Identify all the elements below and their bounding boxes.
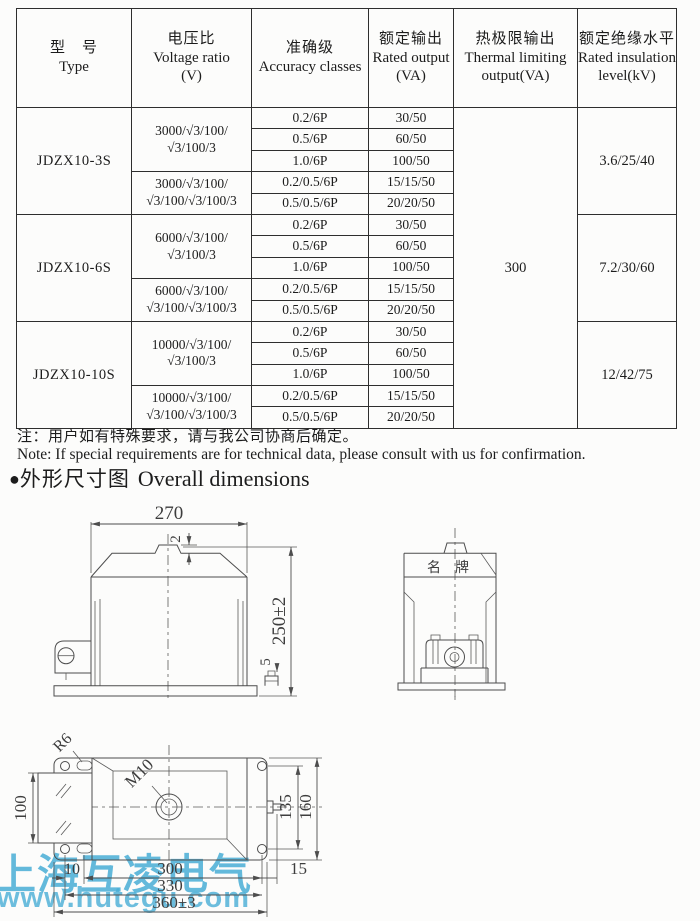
voltage-ratio-cell: 6000/√3/100/ √3/100/√3/100/3 [132, 279, 252, 322]
accuracy-cell: 0.2/0.5/6P [252, 386, 369, 407]
dim-total: 360±3 [152, 893, 195, 912]
voltage-ratio-cell: 3000/√3/100/ √3/100/3 [132, 108, 252, 172]
header-accuracy: 准确级 Accuracy classes [252, 9, 369, 108]
mount-hole [61, 762, 70, 771]
header-thermal: 热极限输出 Thermal limiting output(VA) [454, 9, 578, 108]
accuracy-cell: 0.5/6P [252, 343, 369, 364]
accuracy-cell: 1.0/6P [252, 150, 369, 171]
terminal-hole [445, 647, 465, 667]
accuracy-cell: 1.0/6P [252, 364, 369, 385]
header-rated-output: 额定输出 Rated output (VA) [369, 9, 454, 108]
mount-slot [77, 844, 92, 853]
dim-front-width: 270 [155, 503, 184, 524]
output-cell: 100/50 [369, 364, 454, 385]
table-row: JDZX10-10S 10000/√3/100/ √3/100/3 0.2/6P… [17, 321, 677, 342]
voltage-ratio-cell: 10000/√3/100/ √3/100/√3/100/3 [132, 386, 252, 429]
section-heading: ●外形尺寸图Overall dimensions [9, 463, 310, 493]
voltage-ratio-cell: 6000/√3/100/ √3/100/3 [132, 214, 252, 278]
side-view-drawing: 名牌 [398, 528, 505, 700]
table-header-row: 型 号 Type 电压比 Voltage ratio (V) 准确级 Accur… [17, 9, 677, 108]
dim-off-right: 15 [290, 859, 307, 878]
dim-base-bolt: 5 [258, 658, 274, 666]
output-cell: 20/20/50 [369, 407, 454, 428]
dim-thread: M10 [121, 755, 157, 791]
output-cell: 100/50 [369, 257, 454, 278]
accuracy-cell: 0.2/6P [252, 108, 369, 129]
voltage-ratio-cell: 3000/√3/100/ √3/100/√3/100/3 [132, 172, 252, 215]
type-cell: JDZX10-6S [17, 214, 132, 321]
header-type: 型 号 Type [17, 9, 132, 108]
section-title-en: Overall dimensions [138, 466, 310, 491]
voltage-ratio-cell: 10000/√3/100/ √3/100/3 [132, 321, 252, 385]
mount-hole [258, 762, 267, 771]
insulation-cell: 3.6/25/40 [578, 108, 677, 215]
dim-right-inner: 135 [276, 794, 295, 820]
note-zh: 注：用户如有特殊要求，请与我公司协商后确定。 [17, 425, 358, 446]
output-cell: 60/50 [369, 129, 454, 150]
dim-right-outer: 160 [296, 794, 315, 820]
insulation-cell: 7.2/30/60 [578, 214, 677, 321]
table-row: JDZX10-3S 3000/√3/100/ √3/100/3 0.2/6P 3… [17, 108, 677, 129]
output-cell: 60/50 [369, 236, 454, 257]
output-cell: 15/15/50 [369, 279, 454, 300]
dim-left-height: 100 [11, 795, 30, 821]
table-row: JDZX10-6S 6000/√3/100/ √3/100/3 0.2/6P 3… [17, 214, 677, 235]
accuracy-cell: 0.5/6P [252, 129, 369, 150]
dim-slot-radius: R6 [50, 730, 75, 755]
header-insulation: 额定绝缘水平 Rated insulation level(kV) [578, 9, 677, 108]
dim-cap-height: 2 [168, 535, 184, 543]
front-view-drawing: 270 2 250±2 5 [54, 503, 297, 702]
output-cell: 60/50 [369, 343, 454, 364]
note-en: Note: If special requirements are for te… [17, 446, 586, 464]
insulation-cell: 12/42/75 [578, 321, 677, 428]
output-cell: 30/50 [369, 214, 454, 235]
output-cell: 30/50 [369, 108, 454, 129]
accuracy-cell: 0.2/6P [252, 214, 369, 235]
thermal-cell: 300 [454, 108, 578, 429]
overall-dimensions-drawing: 270 2 250±2 5 [0, 500, 700, 921]
accuracy-cell: 1.0/6P [252, 257, 369, 278]
accuracy-cell: 0.2/0.5/6P [252, 172, 369, 193]
mount-slot [77, 761, 92, 770]
output-cell: 15/15/50 [369, 172, 454, 193]
output-cell: 100/50 [369, 150, 454, 171]
spec-table: 型 号 Type 电压比 Voltage ratio (V) 准确级 Accur… [16, 8, 677, 429]
accuracy-cell: 0.2/0.5/6P [252, 279, 369, 300]
bullet-icon: ● [9, 469, 20, 489]
accuracy-cell: 0.5/6P [252, 236, 369, 257]
accuracy-cell: 0.5/0.5/6P [252, 300, 369, 321]
header-voltage-ratio: 电压比 Voltage ratio (V) [132, 9, 252, 108]
mount-hole [258, 845, 267, 854]
section-title-zh: 外形尺寸图 [20, 467, 130, 491]
output-cell: 20/20/50 [369, 193, 454, 214]
left-terminal-box [38, 773, 92, 843]
page: { "table": { "headers": { "type": ["型 号"… [0, 0, 700, 921]
bottom-view-drawing: R6 100 M10 135 160 [11, 730, 322, 917]
output-cell: 30/50 [369, 321, 454, 342]
type-cell: JDZX10-3S [17, 108, 132, 215]
dim-front-height: 250±2 [269, 597, 290, 645]
output-cell: 20/20/50 [369, 300, 454, 321]
accuracy-cell: 0.5/0.5/6P [252, 193, 369, 214]
accuracy-cell: 0.2/6P [252, 321, 369, 342]
output-cell: 15/15/50 [369, 386, 454, 407]
type-cell: JDZX10-10S [17, 321, 132, 428]
mount-hole [61, 845, 70, 854]
dim-off-left: 10 [64, 861, 80, 878]
nameplate-label: 名牌 [427, 559, 483, 576]
